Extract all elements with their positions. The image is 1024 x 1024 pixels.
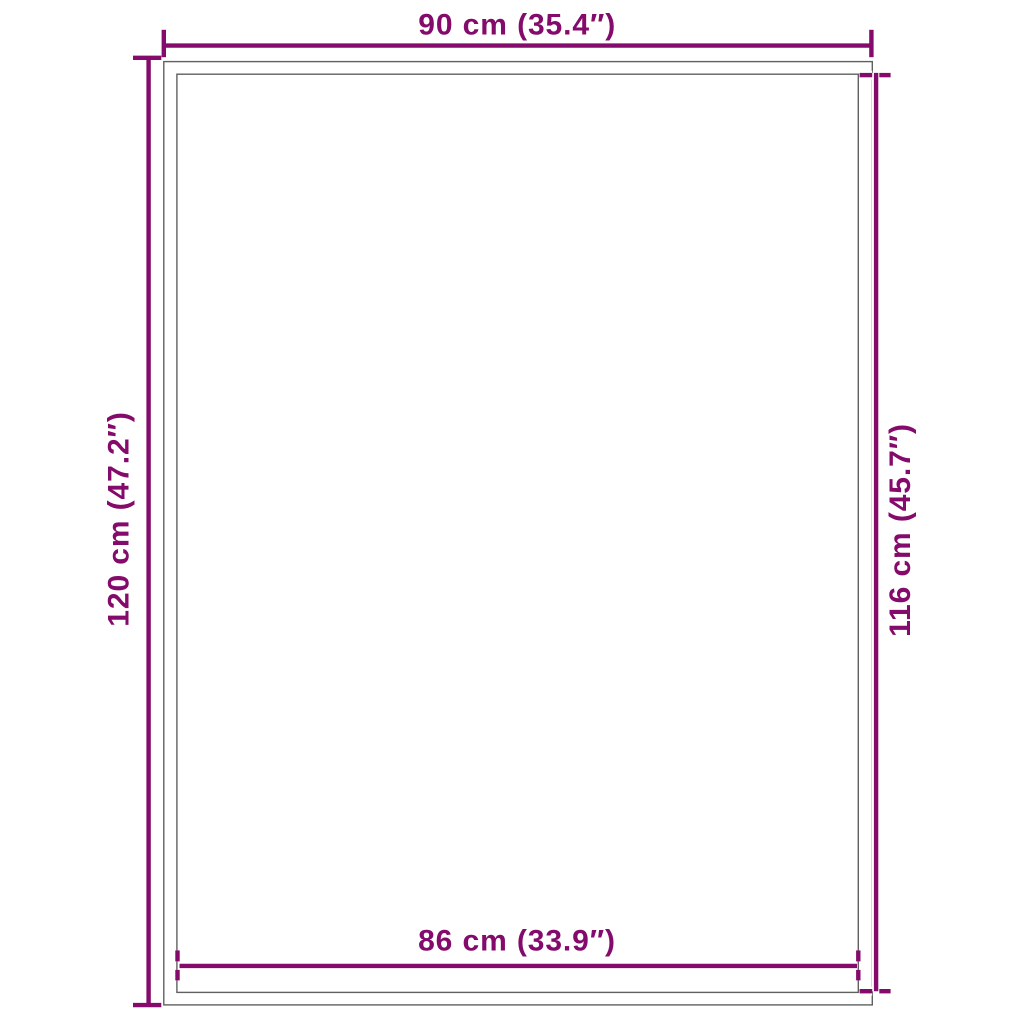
svg-text:90 cm (35.4″): 90 cm (35.4″) [418, 9, 616, 42]
svg-text:116 cm (45.7″): 116 cm (45.7″) [884, 423, 917, 637]
svg-text:86 cm (33.9″): 86 cm (33.9″) [418, 924, 616, 957]
svg-text:120 cm (47.2″): 120 cm (47.2″) [103, 411, 136, 626]
